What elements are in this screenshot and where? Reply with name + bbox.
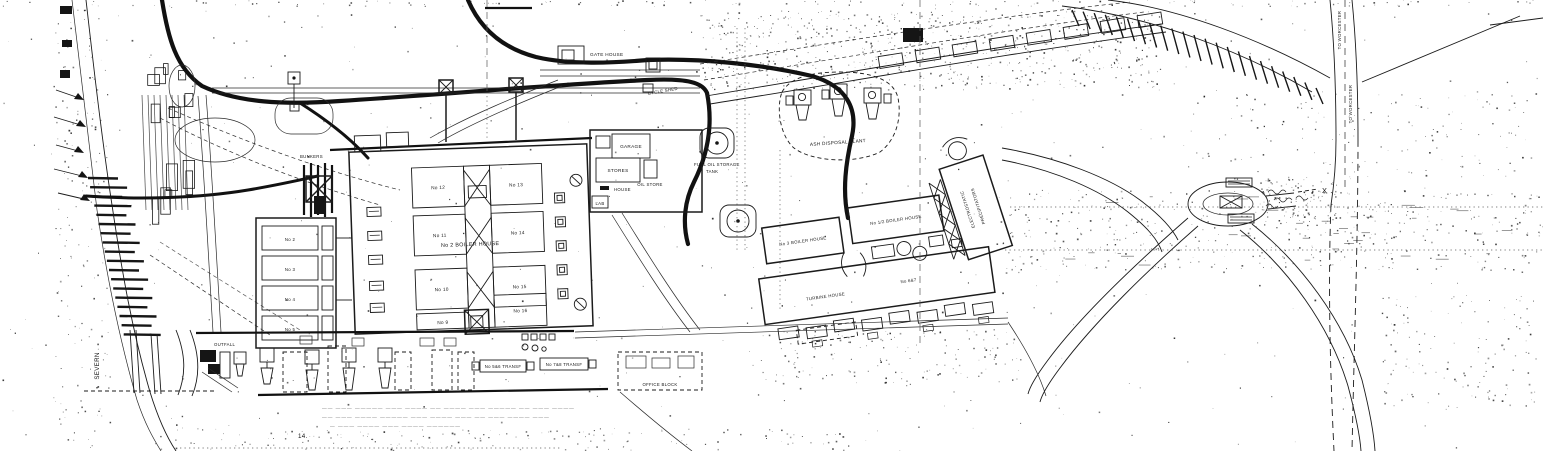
road-worcester: TO WORCESTER TO WORCESTER xyxy=(1330,0,1520,451)
tank-symbols xyxy=(260,348,392,390)
weigh-house-label: HOUSE xyxy=(614,187,631,192)
river-label: SEVERN xyxy=(94,352,101,379)
ash-hopper xyxy=(786,90,811,120)
river-severn: SEVERN xyxy=(54,0,214,451)
coal-bunkers: BUNKERS xyxy=(300,154,332,217)
site-plan-scan: SEVERN xyxy=(0,0,1543,451)
wharf-structures xyxy=(142,64,195,225)
stores-label: STORES xyxy=(608,168,629,173)
unit-label: No 10 xyxy=(435,287,449,292)
oil-store-label: OIL STORE xyxy=(637,182,662,187)
precipitators: ELECTROSTATIC PRECIPITATORS xyxy=(918,131,1012,264)
bunkers-label: BUNKERS xyxy=(300,154,323,159)
turbine-bays: No 2 No 3 No 4 No 5 xyxy=(262,226,333,340)
trans-67-label: No 6&7 xyxy=(900,277,917,284)
unit-label: No 16 xyxy=(513,308,527,313)
boiler-house-no2: No 12 No 13 No 11 No 14 No 10 No 15 No 9… xyxy=(348,126,593,338)
trans-78-label: No 7&8 TRANSF xyxy=(546,362,583,367)
hatch-lines xyxy=(1072,10,1323,104)
ash-plant: ASH DISPOSAL PLANT xyxy=(779,72,899,160)
office-block-label: OFFICE BLOCK xyxy=(642,382,677,387)
roads-east: X xyxy=(1002,148,1375,451)
fuel-tanks: FUEL OIL STORAGE TANK xyxy=(694,128,756,237)
bay-label: No 5 xyxy=(285,327,296,332)
unit-label: No 12 xyxy=(431,185,445,190)
figure-number: 14. xyxy=(298,433,308,440)
switchgear-cluster xyxy=(522,334,555,351)
fan-plant-row xyxy=(554,174,587,311)
river-bank-revetment xyxy=(88,178,161,335)
unit-label: No 14 xyxy=(511,230,525,235)
station-east: No 3 BOILER HOUSE No 1/2 BOILER HOUSE TU… xyxy=(751,189,999,353)
note-line-3: — ——— ———— ——— ———— —————— xyxy=(330,424,461,429)
bay-label: No 3 xyxy=(285,267,296,272)
shore-squiggles xyxy=(1266,190,1308,208)
to-worcester-label-top: TO WORCESTER xyxy=(1337,11,1342,50)
unit-label: No 11 xyxy=(433,233,447,238)
gate-house-label: GATE HOUSE xyxy=(590,52,623,57)
transformer-bay-78: No 7&8 TRANSF xyxy=(540,358,596,370)
bay-label: No 2 xyxy=(285,237,296,242)
turbine-house-label: TURBINE HOUSE xyxy=(806,291,846,301)
site-plan-drawing: SEVERN xyxy=(0,0,1543,451)
boiler-house-no12-label: No 1/2 BOILER HOUSE xyxy=(870,214,922,226)
river-channel-lines xyxy=(84,330,214,396)
notes-block: —— ——— ————— ——— ———— —— ———— ——— ————— … xyxy=(298,406,575,440)
transformer-bay-56: No 5&6 TRANSF xyxy=(472,360,534,372)
rail-gantry xyxy=(288,72,300,111)
ash-plant-label: ASH DISPOSAL PLANT xyxy=(810,138,866,147)
unit-label: No 9 xyxy=(437,320,448,325)
mill-bays xyxy=(367,207,385,312)
fuel-tank-label-2: TANK xyxy=(706,169,718,174)
outfall-works: OUTFALL xyxy=(200,342,246,392)
scan-artifacts xyxy=(60,0,1543,448)
note-line-2: —— ——— ———— ————— ——— ———— ——— —— ——— ——… xyxy=(322,415,550,420)
level-crossing-box xyxy=(643,58,660,92)
lab-label: LAB xyxy=(595,201,604,206)
boiler-house-no2-label: No 2 BOILER HOUSE xyxy=(441,241,500,249)
sidings-hatch xyxy=(1062,0,1330,104)
unit-label: No 13 xyxy=(509,182,523,187)
unit-label: No 15 xyxy=(513,284,527,289)
x-marker: X xyxy=(1322,186,1327,195)
outfall-label: OUTFALL xyxy=(214,342,236,347)
to-worcester-label-bottom: TO WORCESTER xyxy=(1348,85,1353,124)
cycle-shed-label: CYCLE SHED xyxy=(647,86,678,96)
ash-hopper xyxy=(864,88,891,119)
boiler-house-no3-label: No 3 BOILER HOUSE xyxy=(779,235,827,247)
gate-area: GATE HOUSE CYCLE SHED xyxy=(540,46,700,96)
trans-56-label: No 5&6 TRANSF xyxy=(485,364,522,369)
note-line-1: —— ——— ————— ——— ———— —— ———— ——— ————— … xyxy=(322,406,575,411)
fuel-tank-label-1: FUEL OIL STORAGE xyxy=(694,162,740,167)
railway-lines xyxy=(86,0,853,451)
rail-crossing-tower-1 xyxy=(439,80,453,142)
garage-label: GARAGE xyxy=(620,144,642,149)
bay-label: No 4 xyxy=(285,297,296,302)
